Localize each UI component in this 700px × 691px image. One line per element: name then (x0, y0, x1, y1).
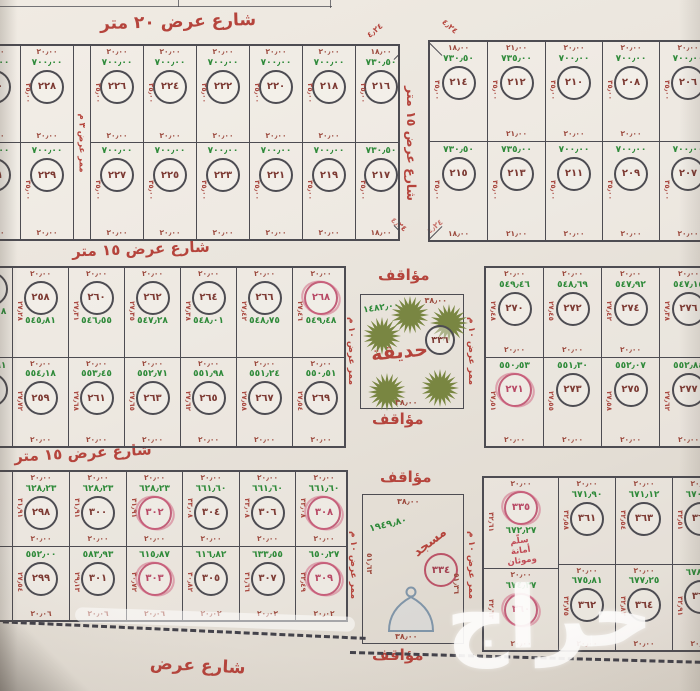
plot-cell: ٢٠٫٠٠٢٦٨٥٤٩٫٤٨٢٧٫٤٦ (293, 268, 346, 358)
plot-side-dim: ٢٧٫٥١ (489, 391, 497, 411)
plot-width-dim: ٢٠٫٠٠ (677, 44, 698, 52)
plot-width-dim: ٢٠٫٠٠ (504, 436, 525, 444)
plot-number-circle: ٢٧٥ (614, 373, 648, 407)
street-label-vertical: شارع عرض ١٥ متر (404, 86, 419, 201)
plot-side-dim: ٣٥٫٠٠ (24, 83, 32, 103)
plot-number-circle: ٢٧٠ (498, 292, 532, 326)
plot-cell: ٢٠٫٠٠٦٦١٫٦٠٣٠٤٢٠٫٠٠٣٣٫٠٨ (183, 472, 239, 547)
plot-width-dim: ٢٠٫٠٠ (159, 229, 180, 237)
plot-width-dim: ٢٠٫٠٠ (504, 270, 525, 278)
plot-cell: ٢٠٫٠٠٥٥٠٫٥١٢٦٩٢٠٫٠٠٢٧٫٥٤ (293, 358, 346, 447)
plot-cell: ٢٠٫٠٠٧٠٠٫٠٠٢٢٢٢٠٫٠٠٣٥٫٠٠ (197, 46, 249, 143)
plot-width-dim: ٢٠٫٠٠ (318, 48, 339, 56)
plot-column: ٢٠٫٠٠٧٠٠٫٠٠٢٣٠٢٠٫٠٠٣٥٫٠٠٧٠٠٫٠٠٢٣١٢٠٫٠٠٣٥… (0, 46, 21, 239)
plot-area-value: ٥٥١٫٢٤ (249, 369, 280, 379)
plot-number-circle: ٢٣٠ (0, 70, 11, 104)
plot-side-dim: ٣٥٫٠٠ (549, 180, 557, 200)
plot-cell: ٢٠٫٠٠٢٥٨٥٤٥٫٨١٢٧٫٢٨ (13, 268, 68, 358)
plot-cell: ٢٠٫٠٠٧٠٠٫٠٠٢١٠٢٠٫٠٠٣٥٫٠٠ (546, 42, 602, 142)
plot-area-value: ٦٢٨٫٢٣ (139, 484, 170, 494)
plot-side-dim: ٣٥٫٠٠ (663, 80, 671, 100)
plot-cell: ٢٠٫٠٠٧٠٠٫٠٠٢٢٨٢٠٫٠٠٣٥٫٠٠ (21, 46, 73, 143)
plot-column: ٢٠٫٠٠٧٠٠٫٠٠٢١٠٢٠٫٠٠٣٥٫٠٠٧٠٠٫٠٠٢١١٢٠٫٠٠٣٥… (546, 42, 603, 240)
plot-side-dim: ٣٢٫٥١ (676, 510, 684, 530)
plot-width-dim: ٢٠٫٠٠ (30, 360, 51, 368)
plot-side-dim: ٢٧٫٤٦ (296, 301, 304, 321)
plot-cell: ٢٠٫٠٠٦٧١٫١٢٣٦٣٣٢٫٥٤ (616, 478, 672, 565)
plot-side-dim: ٣٠٫٧٢ (130, 572, 138, 592)
plot-area-value: ٥٥٤٫١٨ (25, 369, 56, 379)
plot-width-dim: ٢٠٫٠٠ (254, 270, 275, 278)
plot-width-dim: ٢٠٫٠٠ (576, 480, 597, 488)
plot-area-value: ٧٣٠٫٥٠ (366, 58, 397, 68)
plot-side-dim: ٣٥٫٠٠ (200, 83, 208, 103)
plot-side-dim: ٣٥٫٠٠ (94, 83, 102, 103)
plot-width-dim: ٢٠٫٠٠ (159, 48, 180, 56)
plot-width-dim: ٢٠٫٠٠ (510, 480, 531, 488)
plot-side-dim: ٢٧٫٤٥ (547, 301, 555, 321)
plot-area-value: ٦٧١٫٩٠ (572, 490, 603, 500)
plot-cell: ٥٥٢٫٨٤٢٧٧٢٠٫٠٠٢٧٫٦٢ (660, 358, 700, 447)
plot-column: ٢٠٫٠٠٦٧٠٫٣٤٣٦٥٣٢٫٥١٦٧٨٫٦٩٣٦٦٢٠٫٠٠٣٢٫٩١ (673, 478, 700, 650)
plot-column: ٢٠٫٠٠٥٤٩٫٤٦٢٧٠٢٠٫٠٠٢٧٫٤٨٥٥٠٫٥٣٢٧١٢٠٫٠٠٢٧… (486, 268, 544, 446)
plot-side-dim: ٣٥٫٠٠ (663, 180, 671, 200)
plot-column: ٢٠٫٠٠٧٠٠٫٠٠٢٢٦٢٠٫٠٠٣٥٫٠٠٧٠٠٫٠٠٢٢٧٢٠٫٠٠٣٥… (91, 46, 144, 239)
mosque-dome-icon (383, 583, 439, 635)
plot-cell: ٦٥٠٫٢٧٣٠٩٢٠٫٠٢٣٢٫٤٩ (296, 547, 348, 621)
plot-number-circle: ٢٧٦ (672, 292, 700, 326)
plot-area-value: ٦١٥٫٨٧ (139, 550, 170, 560)
plot-side-dim: ٣٥٫٠٠ (491, 80, 499, 100)
plot-width-dim: ٢٠٫٠٠ (142, 360, 163, 368)
plot-area-value: ٧٠٠٫٠٠ (559, 145, 590, 155)
plot-side-dim: ٣٢٫٤٩ (299, 572, 307, 592)
plot-width-dim: ٢٠٫٠٠ (198, 436, 219, 444)
plot-cell: ١٨٫٠٠٧٣٠٫٥٠٢١٤٣٥٫٠٠ (430, 42, 487, 142)
plot-number-circle: ٣٦٥ (684, 502, 700, 536)
plot-cell: ١٨٫٠٠٧٣٠٫٥٠٢١٦٣٥٫٠٠ (356, 46, 400, 143)
plot-width-dim: ٢٠٫٠٠ (30, 436, 51, 444)
plot-number-circle: ٢٦١ (80, 381, 114, 415)
plot-width-dim: ٢٠٫٠٠ (0, 229, 5, 237)
plot-width-dim: ٢٠٫٠٠ (30, 535, 51, 543)
plot-cell: ٧٠٠٫٠٠٢٢٣٢٠٫٠٠٣٥٫٠٠ (197, 143, 249, 239)
plot-width-dim: ٢٠٫٠٠ (562, 270, 583, 278)
plot-side-dim: ٣٠٫٨٢ (186, 572, 194, 592)
plot-width-dim: ٢٠٫٠٠ (254, 436, 275, 444)
plot-width-dim: ٢٠٫٠٠ (313, 474, 334, 482)
plot-area-value: ٧٠٠٫٠٠ (32, 146, 63, 156)
plot-number-circle: ٢٠٦ (671, 66, 700, 100)
plot-column: ٢٠٫٠٠٧٠٠٫٠٠٢٢٨٢٠٫٠٠٣٥٫٠٠٧٠٠٫٠٠٢٢٩٢٠٫٠٠٣٥… (21, 46, 74, 239)
plot-area-value: ٥٥٠٫٥٣ (499, 361, 530, 371)
plot-width-dim: ٢٠٫٠٦ (30, 610, 51, 618)
plot-width-dim: ٢٠٫٠٠ (30, 270, 51, 278)
plot-side-dim: ٣٥٫٠٠ (147, 83, 155, 103)
plot-column: ٢٠٫٠٠٧٠٠٫٠٠٢٢٠٢٠٫٠٠٣٥٫٠٠٧٠٠٫٠٠٢٢١٢٠٫٠٠٣٥… (250, 46, 303, 239)
plot-area-value: ٥٨٣٫٩٣ (83, 550, 114, 560)
plot-side-dim: ٣٥٫٠٠ (253, 83, 261, 103)
plot-side-dim: ٣٥٫٠٠ (549, 80, 557, 100)
plot-side-dim: ٢٧٫٧٢ (16, 391, 24, 411)
plot-area-value: ٦٧١٫١٢ (629, 490, 660, 500)
plot-area-value: ٧٠٠٫٠٠ (102, 146, 133, 156)
plot-cell: ٢٠٫٠٠٧٠٠٫٠٠٢١٨٢٠٫٠٠٣٥٫٠٠ (303, 46, 355, 143)
plot-width-dim: ٢٠٫٠٠ (265, 132, 286, 140)
plot-area-value: ٧٣٥٫٠٠ (501, 54, 532, 64)
plot-column: ٢١٫٠٠٧٣٥٫٠٠٢١٢٢١٫٠٠٣٥٫٠٠٧٣٥٫٠٠٢١٣٢١٫٠٠٣٥… (488, 42, 546, 240)
plot-area-value: ٧٠٠٫٠٠ (673, 145, 700, 155)
plot-width-dim: ٢٠٫٠٠ (36, 132, 57, 140)
plot-side-dim: ٢٩٫١٣ (73, 572, 81, 592)
subdivision-map: شارع عرض ٢٠ متر شارع عرض ١٥ متر شارع عرض… (0, 0, 700, 691)
plot-width-dim: ٢١٫٠٠ (506, 44, 527, 52)
plot-column: ٢٠٫٠٠٧٠٠٫٠٠٢٢٤٢٠٫٠٠٣٥٫٠٠٧٠٠٫٠٠٢٢٥٢٠٫٠٠٣٥… (144, 46, 197, 239)
plot-cell: ٢٠٫٠٠٥٥٤٫١٨٢٥٩٢٠٫٠٠٢٧٫٧٢ (13, 358, 68, 447)
corner-dim-label: ٤٫٢٤ (365, 21, 384, 39)
plot-number-circle: ٢٠٨ (614, 66, 648, 100)
plot-number-circle: ٢٦٥ (192, 381, 226, 415)
plot-cell: ٧٠٠٫٠٠٢٢٥٢٠٫٠٠٣٥٫٠٠ (144, 143, 196, 239)
plot-area-value: ٥٥١٫٩٨ (193, 369, 224, 379)
plot-cell: ٢٠٫٠٠٧٠٠٫٠٠٢٢٤٢٠٫٠٠٣٥٫٠٠ (144, 46, 196, 143)
plot-width-dim: ٢٠٫٠٠ (212, 132, 233, 140)
plot-width-dim: ٢٠٫٠٠ (690, 480, 700, 488)
plot-width-dim: ٢٠٫٠٠ (106, 229, 127, 237)
plot-width-dim: ٢٠٫٠٠ (142, 436, 163, 444)
plot-width-dim: ٢٠٫٠٠ (678, 436, 699, 444)
plot-cell: ٧٠٠٫٠٠٢٢٩٢٠٫٠٠٣٥٫٠٠ (21, 143, 73, 239)
plot-side-dim: ٣١٫٩١ (16, 498, 24, 518)
plot-area-value: ٦٦١٫٦٠ (252, 484, 283, 494)
plot-number-circle: ٣٦٣ (627, 502, 661, 536)
plot-cell: ٧٠٠٫٠٠٢٠٧٢٠٫٠٠٣٥٫٠٠ (660, 142, 700, 241)
plot-number-circle: ٢١١ (557, 157, 591, 191)
plot-width-dim: ٢٠٫٠٠ (310, 360, 331, 368)
plot-area-value: ٥٥٣٫٤٥ (81, 369, 112, 379)
plot-width-dim: ٢٠٫٠٠ (212, 48, 233, 56)
plot-area-value: ٧٠٠٫٠٠ (261, 58, 292, 68)
plot-side-dim: ٣١٫٩١ (130, 498, 138, 518)
plot-cell: ٧٠٠٫٠٠٢٢٧٢٠٫٠٠٣٥٫٠٠ (91, 143, 143, 239)
plot-side-dim: ٢٧٫٦٢ (184, 391, 192, 411)
block-top-left: ٢٠٫٠٠٧٠٠٫٠٠٢٣٠٢٠٫٠٠٣٥٫٠٠٧٠٠٫٠٠٢٣١٢٠٫٠٠٣٥… (0, 44, 400, 241)
plot-side-dim: ٢٧٫٣٨ (184, 301, 192, 321)
plot-side-dim: ٢٧٫٥٤ (16, 572, 24, 592)
plot-width-dim: ٢٠٫٠٠ (310, 436, 331, 444)
corner-chamfer-line (428, 41, 442, 56)
plot-width-dim: ٢٠٫٠٠ (620, 130, 641, 138)
plot-number-circle: ٢٢٨ (30, 70, 64, 104)
plot-width-dim: ٢٠٫٠٠ (36, 229, 57, 237)
plot-area-value: ٦٦١٫٦٠ (196, 484, 227, 494)
plot-side-dim: ٣٣٫٠٨ (299, 498, 307, 518)
plot-area-value: ٥٤٧٫٢٨ (137, 316, 168, 326)
plot-side-dim: ٢٧٫٤٨ (489, 301, 497, 321)
plot-side-dim: ٣٥٫٠٠ (606, 180, 614, 200)
plot-cell: ٢٠٫٠٠٦٧١٫٩٠٣٦١٣٢٫٥٨ (559, 478, 615, 565)
plot-number-circle: ٢٥٨ (24, 281, 58, 315)
plot-number-circle: ٢٧١ (498, 373, 532, 407)
watermark-text: حراج (445, 566, 654, 670)
plot-area-value: ٧٠٠٫٠٠ (616, 54, 647, 64)
plot-area-value: ٧٣٠٫٥٠ (366, 146, 397, 156)
plot-cell: ٢٠٫٠٠٦٢٨٫٢٣٢٩٨٢٠٫٠٠٣١٫٩١ (13, 472, 69, 547)
plot-number-circle: ٣٠٩ (307, 562, 341, 596)
plot-cell: ٢٠٫٠٠٢٦٢٥٤٧٫٢٨٢٧٫٣٥ (125, 268, 180, 358)
plot-cell: ٢٠٫٠٠٦٢٨٫٢٣٣٠٠٢٠٫٠٠٣١٫٩١ (70, 472, 126, 547)
plot-column: ٢٠٫٠٠٦٦١٫٦٠٣٠٨٢٠٫٠٠٣٣٫٠٨٦٥٠٫٢٧٣٠٩٢٠٫٠٢٣٢… (296, 472, 348, 620)
plot-area-value: ٦٢٨٫٢٣ (26, 484, 57, 494)
plot-number-circle: ٢٢٦ (100, 70, 134, 104)
corner-dim-label: ٤٫٢٤ (440, 17, 459, 35)
plot-area-value: ٧٠٠٫٠٠ (102, 58, 133, 68)
plot-cell: ٢٠٫٠٠٣٣٥٦٧٢٫٢٧سلّمأمانةوموثان٣٢٫٦١ (484, 478, 558, 569)
plot-side-dim: ٣٥٫٠٠ (253, 180, 261, 200)
plot-width-dim: ٢٠٫٠٠ (254, 360, 275, 368)
plot-cell: ٧٣٥٫٠٠٢١٣٢١٫٠٠٣٥٫٠٠ (488, 142, 545, 241)
plot-number-circle: ٣٠٠ (81, 496, 115, 530)
plot-column: ٢٠٫٠٠٢٦٢٥٤٧٫٢٨٢٧٫٣٥٢٠٫٠٠٥٥٢٫٧١٢٦٣٢٠٫٠٠٢٧… (125, 268, 181, 446)
plot-side-dim: ٣٥٫٠٠ (24, 180, 32, 200)
plot-number-circle: ٣٠٢ (138, 496, 172, 530)
plot-area-value: ٦٥٠٫٢٧ (309, 550, 340, 560)
park-width-dim: ٣٨٫٠٠ (395, 398, 418, 407)
plot-number-circle: ٣٠٥ (194, 562, 228, 596)
plot-width-dim: ٢٠٫٠٠ (562, 346, 583, 354)
plot-cell: ٧٠٠٫٠٠٢١١٢٠٫٠٠٣٥٫٠٠ (546, 142, 602, 241)
plot-cell: ٥٥٠٫٥٣٢٧١٢٠٫٠٠٢٧٫٥١ (486, 358, 543, 447)
plot-width-dim: ٢٠٫٠٠ (620, 270, 641, 278)
plot-number-circle: ٢٦٦ (248, 281, 282, 315)
plot-side-dim: ٣٥٫٠٠ (433, 180, 441, 200)
plot-width-dim: ٢٠٫٠٠ (318, 229, 339, 237)
plot-area-value: ٦٣٣٫٥٥ (252, 550, 283, 560)
plot-cell: ٢٠٫٠٠٥٤٨٫٦٩٢٧٢٢٠٫٠٠٢٧٫٤٥ (544, 268, 601, 358)
plot-side-dim: ٣٢٫٦١ (487, 512, 495, 532)
plot-width-dim: ٢٠٫٠٠ (563, 130, 584, 138)
plot-area-value: ٧٠٠٫٠٠ (559, 54, 590, 64)
plot-cell: ٢٠٫٠٠٧٠٠٫٠٠٢٢٠٢٠٫٠٠٣٥٫٠٠ (250, 46, 302, 143)
plot-area-value: ٦٦١٫٦٠ (309, 484, 340, 494)
plot-side-dim: ٣١٫٩١ (73, 498, 81, 518)
block-bottom-left: ٢٠٫٠٠٦٢٨٫٢٣٢٩٨٢٠٫٠٠٣١٫٩١٥٥٢٫٠٠٢٩٩٢٠٫٠٦٢٧… (0, 470, 348, 622)
plot-width-dim: ٢٠٫٠٠ (86, 360, 107, 368)
street-label-top: شارع عرض ٢٠ متر (100, 10, 257, 34)
plot-cell: ٢٠٫٠٠٧٠٠٫٠٠٢٠٨٢٠٫٠٠٣٥٫٠٠ (603, 42, 659, 142)
plot-area-value: ٧٠٠٫٠٠ (208, 146, 239, 156)
plot-column: ٢٠٫٠٠٢٦٨٥٤٩٫٤٨٢٧٫٤٦٢٠٫٠٠٥٥٠٫٥١٢٦٩٢٠٫٠٠٢٧… (293, 268, 346, 446)
plot-cell: ٢٠٫٠٠٧٠٠٫٠٠٢٢٦٢٠٫٠٠٣٥٫٠٠ (91, 46, 143, 143)
plot-cell: ٢٠٫٠٠٧٠٠٫٠٠٢٣٠٢٠٫٠٠٣٥٫٠٠ (0, 46, 20, 143)
plot-cell: ٧٠٠٫٠٠٢١٩٢٠٫٠٠٣٥٫٠٠ (303, 143, 355, 239)
plot-number-circle: ٢٢٥ (153, 158, 187, 192)
plot-number-circle: ٢١٠ (557, 66, 591, 100)
plot-width-dim: ٢٠٫٠٠ (142, 270, 163, 278)
plot-width-dim: ٢٠٫٠٠ (198, 270, 219, 278)
walkway-10m-label: ممر عرض ١٠ م (348, 531, 358, 599)
plot-width-dim: ٢١٫٠٠ (506, 230, 527, 238)
plot-area-value: ٧٠٠٫٠٠ (0, 58, 9, 68)
plot-number-circle: ٢٣١ (0, 158, 11, 192)
plot-area-value: ٧٠٠٫٠٠ (0, 146, 9, 156)
plot-area-value: ٧٠٠٫٠٠ (208, 58, 239, 68)
plot-cell: ٢٠٫٠٠٢٦٦٥٤٨٫٧٥٢٧٫٤٢ (237, 268, 292, 358)
plot-side-dim: ٢٧٫٣٨ (663, 301, 671, 321)
plot-side-dim: ٣٥٫٠٠ (306, 83, 314, 103)
plot-number-circle: ٢٧٤ (614, 292, 648, 326)
plot-side-dim: ٢٧٫٥٤ (296, 391, 304, 411)
plot-width-dim: ٢٠٫٠٠ (310, 270, 331, 278)
plot-side-dim: ٣٢٫٩١ (676, 596, 684, 616)
plot-number-circle: ٢٥٦ (0, 272, 8, 306)
plot-area-value: ٥٤٩٫٤٨ (306, 316, 337, 326)
plot-number-circle: ٢٦٤ (192, 281, 226, 315)
plot-area-value: ٥٤٨٫٦٩ (557, 280, 588, 290)
plot-side-dim: ٣٣٫٠٨ (186, 498, 194, 518)
plot-area-value: ٧٠٠٫٠٠ (616, 145, 647, 155)
plot-side-dim: ٢٧٫٥٥ (547, 391, 555, 411)
plot-area-value: ٧٠٠٫٠٠ (261, 146, 292, 156)
plot-side-dim: ٢٧٫٢٨ (16, 301, 24, 321)
walkway-10m-label: ممر عرض ١٠ م (346, 317, 356, 385)
plot-width-dim: ٢٠٫٠٠ (144, 535, 165, 543)
plot-width-dim: ٢٠٫٠٠ (87, 474, 108, 482)
plot-number-circle: ٢٢٩ (30, 158, 64, 192)
plot-number-circle: ٣٣٥ (504, 491, 538, 525)
plot-number-circle: ٢١٤ (442, 66, 476, 100)
plot-number-circle: ٢٦٢ (136, 281, 170, 315)
plot-width-dim: ٢٠٫٠٠ (198, 360, 219, 368)
top-remnant-tick (330, 0, 331, 8)
plot-area-value: ٥٥٢٫٠٧ (615, 361, 646, 371)
plot-cell: ٢٠٫٠٠٢٦٤٥٤٨٫٠١٢٧٫٣٨ (181, 268, 236, 358)
plot-area-value: ٧٠٠٫٠٠ (155, 58, 186, 68)
plot-number-circle: ٢٢٠ (259, 70, 293, 104)
plot-column (0, 472, 13, 620)
plot-cell: ٥٥٤٫٩١٢٥٧ (0, 358, 12, 447)
plot-area-value: ٥٤٦٫٥٥ (81, 316, 112, 326)
plot-number-circle: ٢١٢ (500, 66, 534, 100)
plot-side-dim: ٣٣٫٠٨ (243, 498, 251, 518)
plot-side-dim: ٣٥٫٠٠ (606, 80, 614, 100)
plot-width-dim: ٢٠٫٠٠ (106, 132, 127, 140)
plot-cell: ٦٣٣٫٥٥٣٠٧٢٠٫٠٢٣١٫٦٦ (240, 547, 295, 621)
plot-width-dim: ٢٠٫٠٠ (677, 230, 698, 238)
plot-column: ٢٠٫٠٠٧٠٠٫٠٠٢٠٦٣٥٫٠٠٧٠٠٫٠٠٢٠٧٢٠٫٠٠٣٥٫٠٠ (660, 42, 700, 240)
plot-number-circle: ٢١٧ (364, 158, 398, 192)
plot-width-dim: ٢٠٫٠٠ (690, 640, 700, 648)
plot-number-circle: ٢٦٧ (248, 381, 282, 415)
plot-side-dim: ٣١٫٦٦ (243, 572, 251, 592)
corner-chamfer-line (394, 45, 400, 60)
plot-area-value: ٥٤٧٫٩٢ (615, 280, 646, 290)
plot-column: ٢٠٫٠٠٥٤٧٫١٥٢٧٦٢٧٫٣٨٥٥٢٫٨٤٢٧٧٢٠٫٠٠٢٧٫٦٢ (660, 268, 700, 446)
plot-cell: ٢٠٫٠٠٥٤٧٫٩٢٢٧٤٢٠٫٠٠٢٧٫٤٢ (602, 268, 659, 358)
plot-area-value: ٦٧٨٫٦٩ (686, 568, 700, 578)
plot-number-circle: ٢٧٧ (672, 373, 700, 407)
plot-number-circle: ٢١٩ (312, 158, 346, 192)
plot-side-dim: ٢٧٫٦٨ (72, 391, 80, 411)
plot-width-dim: ٢٠٫٠٠ (265, 48, 286, 56)
plot-width-dim: ٢٠٫٠٠ (633, 480, 654, 488)
mosque-area-value: ١٩٤٩٫٨٠ (368, 515, 408, 535)
plot-cell: ٢٠٫٠٠٦٢٨٫٢٣٣٠٢٢٠٫٠٠٣١٫٩١ (127, 472, 182, 547)
plot-cell: ٥٥١٫٣٠٢٧٣٢٠٫٠٠٢٧٫٥٥ (544, 358, 601, 447)
plot-side-dim: ٢٧٫٤٢ (240, 301, 248, 321)
plot-cell: ٢٠٫٠٠٥٥١٫٩٨٢٦٥٢٠٫٠٠٢٧٫٦٢ (181, 358, 236, 447)
plot-area-value: ٧٠٠٫٠٠ (314, 146, 345, 156)
plot-width-dim: ٢٠٫٠٠ (36, 48, 57, 56)
plot-width-dim: ١٨٫٠٠ (448, 44, 469, 52)
plot-width-dim: ٢٠٫٠٠ (86, 270, 107, 278)
plot-side-dim: ٣٥٫٠٠ (94, 180, 102, 200)
plot-number-circle: ٣٦١ (570, 502, 604, 536)
plot-number-circle: ٣٠٤ (194, 496, 228, 530)
plot-area-value: ٥٤٨٫٧٥ (249, 316, 280, 326)
street-label-bottom: شارع عرض (150, 654, 246, 679)
plot-number-circle: ٢٩٩ (24, 562, 58, 596)
plot-area-value: ٧٣٥٫٠٠ (501, 145, 532, 155)
plot-width-dim: ٢١٫٠٠ (506, 130, 527, 138)
top-remnant-line (0, 6, 332, 7)
plot-area-value: ٥٤٧٫١٥ (673, 280, 700, 290)
top-remnant-tick (178, 0, 179, 7)
plot-area-value: ٧٠٠٫٠٠ (155, 146, 186, 156)
plot-cell: ٧٠٠٫٠٠٢٣١٢٠٫٠٠٣٥٫٠٠ (0, 143, 20, 239)
plot-side-dim: ٢٧٫٦٥ (128, 391, 136, 411)
plot-area-value: ٥٥٢٫٧١ (137, 369, 168, 379)
plot-area-value: ٥٤٥٫٠٨ (0, 307, 6, 317)
plot-column: ١٨٫٠٠٧٣٠٫٥٠٢١٤٣٥٫٠٠٧٣٠٫٥٠٢١٥١٨٫٠٠٣٥٫٠٠ (430, 42, 488, 240)
plot-cell: ٢٠٫٠٠٥٤٧٫١٥٢٧٦٢٧٫٣٨ (660, 268, 700, 358)
plot-number-circle: ٢٠٧ (671, 157, 700, 191)
plot-width-dim: ٢٠٫٠٠ (313, 535, 334, 543)
plot-side-dim: ٣٥٫٠٠ (433, 80, 441, 100)
plot-number-circle: ٣٦٦ (684, 580, 700, 614)
plot-width-dim: ٢٠٫٠٠ (318, 132, 339, 140)
plot-number-circle: ٢٩٨ (24, 496, 58, 530)
plot-area-value: ٧٠٠٫٠٠ (673, 54, 700, 64)
street-label-middle-left: شارع عرض ١٥ متر (72, 238, 210, 261)
plot-number-circle: ٢٦٣ (136, 381, 170, 415)
plot-width-dim: ١٨٫٠٠ (370, 229, 391, 237)
plot-cell: ٢١٫٠٠٧٣٥٫٠٠٢١٢٢١٫٠٠٣٥٫٠٠ (488, 42, 545, 142)
plot-side-dim: ٢٧٫٤٢ (605, 301, 613, 321)
plot-width-dim: ٢٠٫٠٠ (30, 474, 51, 482)
plot-width-dim: ٢٠٫٠٠ (620, 230, 641, 238)
plot-width-dim: ٢٠٫٠٠ (0, 48, 5, 56)
parking-label-park-top: مؤاقف (378, 266, 430, 284)
park-block: ٣٨٫٠٠ ١٤٨٢٫٠٠ ٣٣٦ حديقة ٣٨٫٠٠ (360, 294, 464, 409)
plot-column: ٢٠٫٠٠٦٢٨٫٢٣٢٩٨٢٠٫٠٠٣١٫٩١٥٥٢٫٠٠٢٩٩٢٠٫٠٦٢٧… (13, 472, 70, 620)
plot-area-value: ٧٣٠٫٥٠ (443, 145, 474, 155)
plot-number-circle: ٢٧٢ (556, 292, 590, 326)
plot-number-circle: ٢٢٧ (100, 158, 134, 192)
walkway-3m-label: ممر عرض ٣ م (77, 113, 87, 172)
plot-area-value: ٥٥٢٫٠٠ (26, 550, 57, 560)
plot-cell: ٧٣٠٫٥٠٢١٥١٨٫٠٠٣٥٫٠٠ (430, 142, 487, 241)
plot-column: ٢٥٦٥٤٥٫٠٨٥٥٤٫٩١٢٥٧ (0, 268, 13, 446)
plot-column: ٢٠٫٠٠٢٦٤٥٤٨٫٠١٢٧٫٣٨٢٠٫٠٠٥٥١٫٩٨٢٦٥٢٠٫٠٠٢٧… (181, 268, 237, 446)
block-top-right: ١٨٫٠٠٧٣٠٫٥٠٢١٤٣٥٫٠٠٧٣٠٫٥٠٢١٥١٨٫٠٠٣٥٫٠٠٢١… (428, 40, 700, 242)
plot-area-value: ٦٢٨٫٢٣ (83, 484, 114, 494)
plot-number-circle: ٢٢١ (259, 158, 293, 192)
plot-cell: ٢٠٫٠٠٥٥٣٫٤٥٢٦١٢٠٫٠٠٢٧٫٦٨ (69, 358, 124, 447)
plot-area-value: ٥٥٤٫٩١ (0, 361, 6, 371)
plot-width-dim: ٢٠٫٠٠ (159, 132, 180, 140)
plot-column: ٢٠٫٠٠٦٢٨٫٢٣٣٠٠٢٠٫٠٠٣١٫٩١٥٨٣٫٩٣٣٠١٢٠٫٠٦٢٩… (70, 472, 127, 620)
